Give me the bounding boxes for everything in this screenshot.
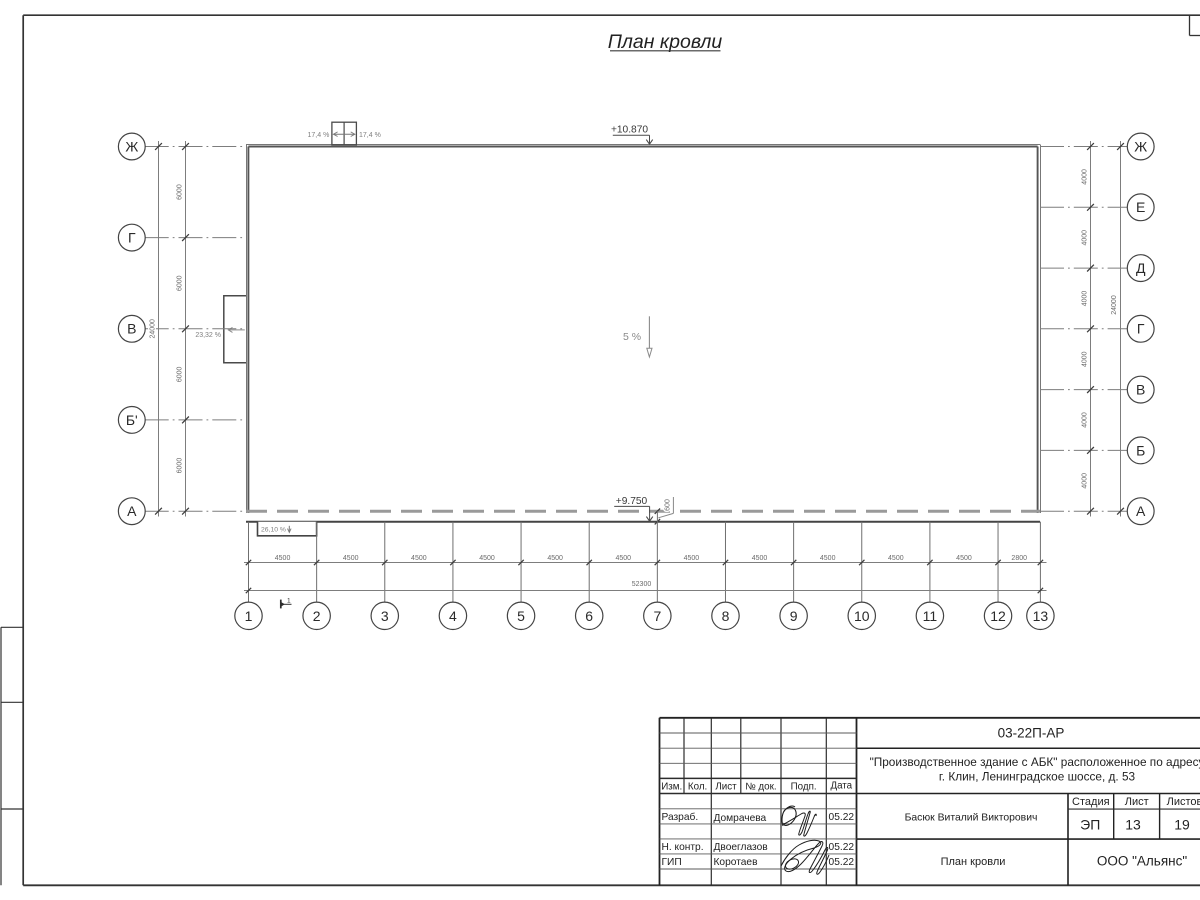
svg-text:Двоеглазов: Двоеглазов	[714, 842, 768, 853]
svg-text:+10.870: +10.870	[611, 124, 648, 135]
svg-text:А: А	[1136, 503, 1146, 519]
svg-text:6: 6	[585, 608, 593, 624]
svg-text:5: 5	[517, 608, 525, 624]
svg-text:05.22: 05.22	[829, 857, 855, 868]
svg-text:13: 13	[1125, 817, 1141, 833]
svg-text:Б: Б	[1136, 442, 1145, 458]
svg-text:4000: 4000	[1082, 351, 1089, 367]
svg-text:4000: 4000	[1082, 412, 1089, 428]
svg-text:13: 13	[1033, 608, 1049, 624]
svg-text:9: 9	[790, 608, 798, 624]
svg-text:7: 7	[653, 608, 661, 624]
svg-text:Ж: Ж	[1134, 138, 1147, 154]
svg-text:10: 10	[854, 608, 870, 624]
svg-text:4500: 4500	[479, 555, 495, 562]
svg-text:600: 600	[665, 499, 672, 511]
svg-text:Г: Г	[128, 230, 136, 246]
svg-text:Листов: Листов	[1167, 796, 1200, 808]
svg-text:Лист: Лист	[715, 781, 737, 792]
svg-text:Н. контр.: Н. контр.	[662, 842, 704, 853]
svg-text:Д: Д	[1136, 260, 1146, 276]
svg-text:ГИП: ГИП	[662, 857, 682, 868]
svg-text:05.22: 05.22	[829, 812, 855, 823]
svg-text:"Производственное здание с АБК: "Производственное здание с АБК" располож…	[870, 755, 1200, 769]
svg-text:В: В	[1136, 382, 1145, 398]
svg-text:17,4 %: 17,4 %	[359, 132, 381, 139]
svg-text:2800: 2800	[1011, 555, 1027, 562]
svg-text:+9.750: +9.750	[616, 496, 648, 507]
svg-text:4000: 4000	[1082, 169, 1089, 185]
svg-text:4000: 4000	[1082, 291, 1089, 307]
svg-text:4500: 4500	[411, 555, 427, 562]
svg-text:4500: 4500	[615, 555, 631, 562]
svg-text:Ж: Ж	[125, 138, 138, 154]
svg-text:Домрачева: Домрачева	[714, 813, 767, 824]
svg-text:Разраб.: Разраб.	[662, 811, 699, 823]
svg-text:ООО "Альянс": ООО "Альянс"	[1097, 853, 1187, 868]
svg-text:ЭП: ЭП	[1080, 817, 1100, 833]
svg-text:Б': Б'	[126, 412, 138, 428]
svg-text:26,10 %: 26,10 %	[261, 526, 286, 533]
svg-text:8: 8	[722, 608, 730, 624]
svg-text:6000: 6000	[176, 275, 183, 291]
svg-text:52300: 52300	[632, 581, 652, 588]
svg-text:17,4 %: 17,4 %	[308, 132, 330, 139]
svg-text:г. Клин, Ленинградское шоссе,: г. Клин, Ленинградское шоссе, д. 53	[939, 769, 1136, 783]
svg-text:12: 12	[990, 608, 1006, 624]
svg-text:4500: 4500	[547, 555, 563, 562]
svg-text:11: 11	[923, 608, 938, 624]
svg-text:Е: Е	[1136, 199, 1145, 215]
svg-text:3: 3	[381, 608, 389, 624]
svg-text:План кровли: План кровли	[941, 856, 1006, 868]
svg-text:6000: 6000	[176, 184, 183, 200]
svg-text:Г: Г	[1137, 321, 1145, 337]
svg-text:24000: 24000	[1111, 295, 1118, 315]
svg-text:Лист: Лист	[1125, 796, 1149, 808]
svg-text:4000: 4000	[1082, 473, 1089, 489]
svg-text:Подп.: Подп.	[791, 781, 817, 792]
svg-text:4000: 4000	[1082, 230, 1089, 246]
svg-text:4500: 4500	[956, 555, 972, 562]
svg-text:4500: 4500	[820, 555, 836, 562]
svg-text:24000: 24000	[150, 319, 157, 339]
svg-text:Стадия: Стадия	[1072, 796, 1110, 808]
svg-text:6000: 6000	[176, 458, 183, 474]
svg-text:Дата: Дата	[830, 780, 852, 791]
svg-text:1: 1	[245, 608, 253, 624]
svg-text:03-22П-АР: 03-22П-АР	[998, 726, 1065, 741]
svg-text:А: А	[127, 503, 137, 519]
svg-text:6000: 6000	[176, 366, 183, 382]
svg-text:В: В	[127, 321, 136, 337]
svg-text:1: 1	[287, 597, 291, 604]
svg-text:4500: 4500	[752, 555, 768, 562]
svg-text:4: 4	[449, 608, 457, 624]
svg-text:4500: 4500	[343, 555, 359, 562]
svg-text:2: 2	[313, 608, 321, 624]
svg-text:5 %: 5 %	[623, 331, 641, 343]
svg-text:Кол.: Кол.	[688, 781, 707, 792]
svg-text:4500: 4500	[275, 555, 291, 562]
svg-text:4500: 4500	[684, 555, 700, 562]
svg-text:19: 19	[1174, 817, 1190, 833]
svg-text:Басюк Виталий Викторович: Басюк Виталий Викторович	[905, 812, 1038, 823]
svg-text:№ док.: № док.	[745, 781, 776, 792]
svg-text:4500: 4500	[888, 555, 904, 562]
svg-text:План кровли: План кровли	[608, 31, 723, 53]
svg-text:05.22: 05.22	[829, 842, 855, 853]
svg-text:Коротаев: Коротаев	[714, 857, 758, 868]
svg-text:Изм.: Изм.	[661, 781, 682, 792]
svg-text:23,32 %: 23,32 %	[195, 332, 221, 339]
